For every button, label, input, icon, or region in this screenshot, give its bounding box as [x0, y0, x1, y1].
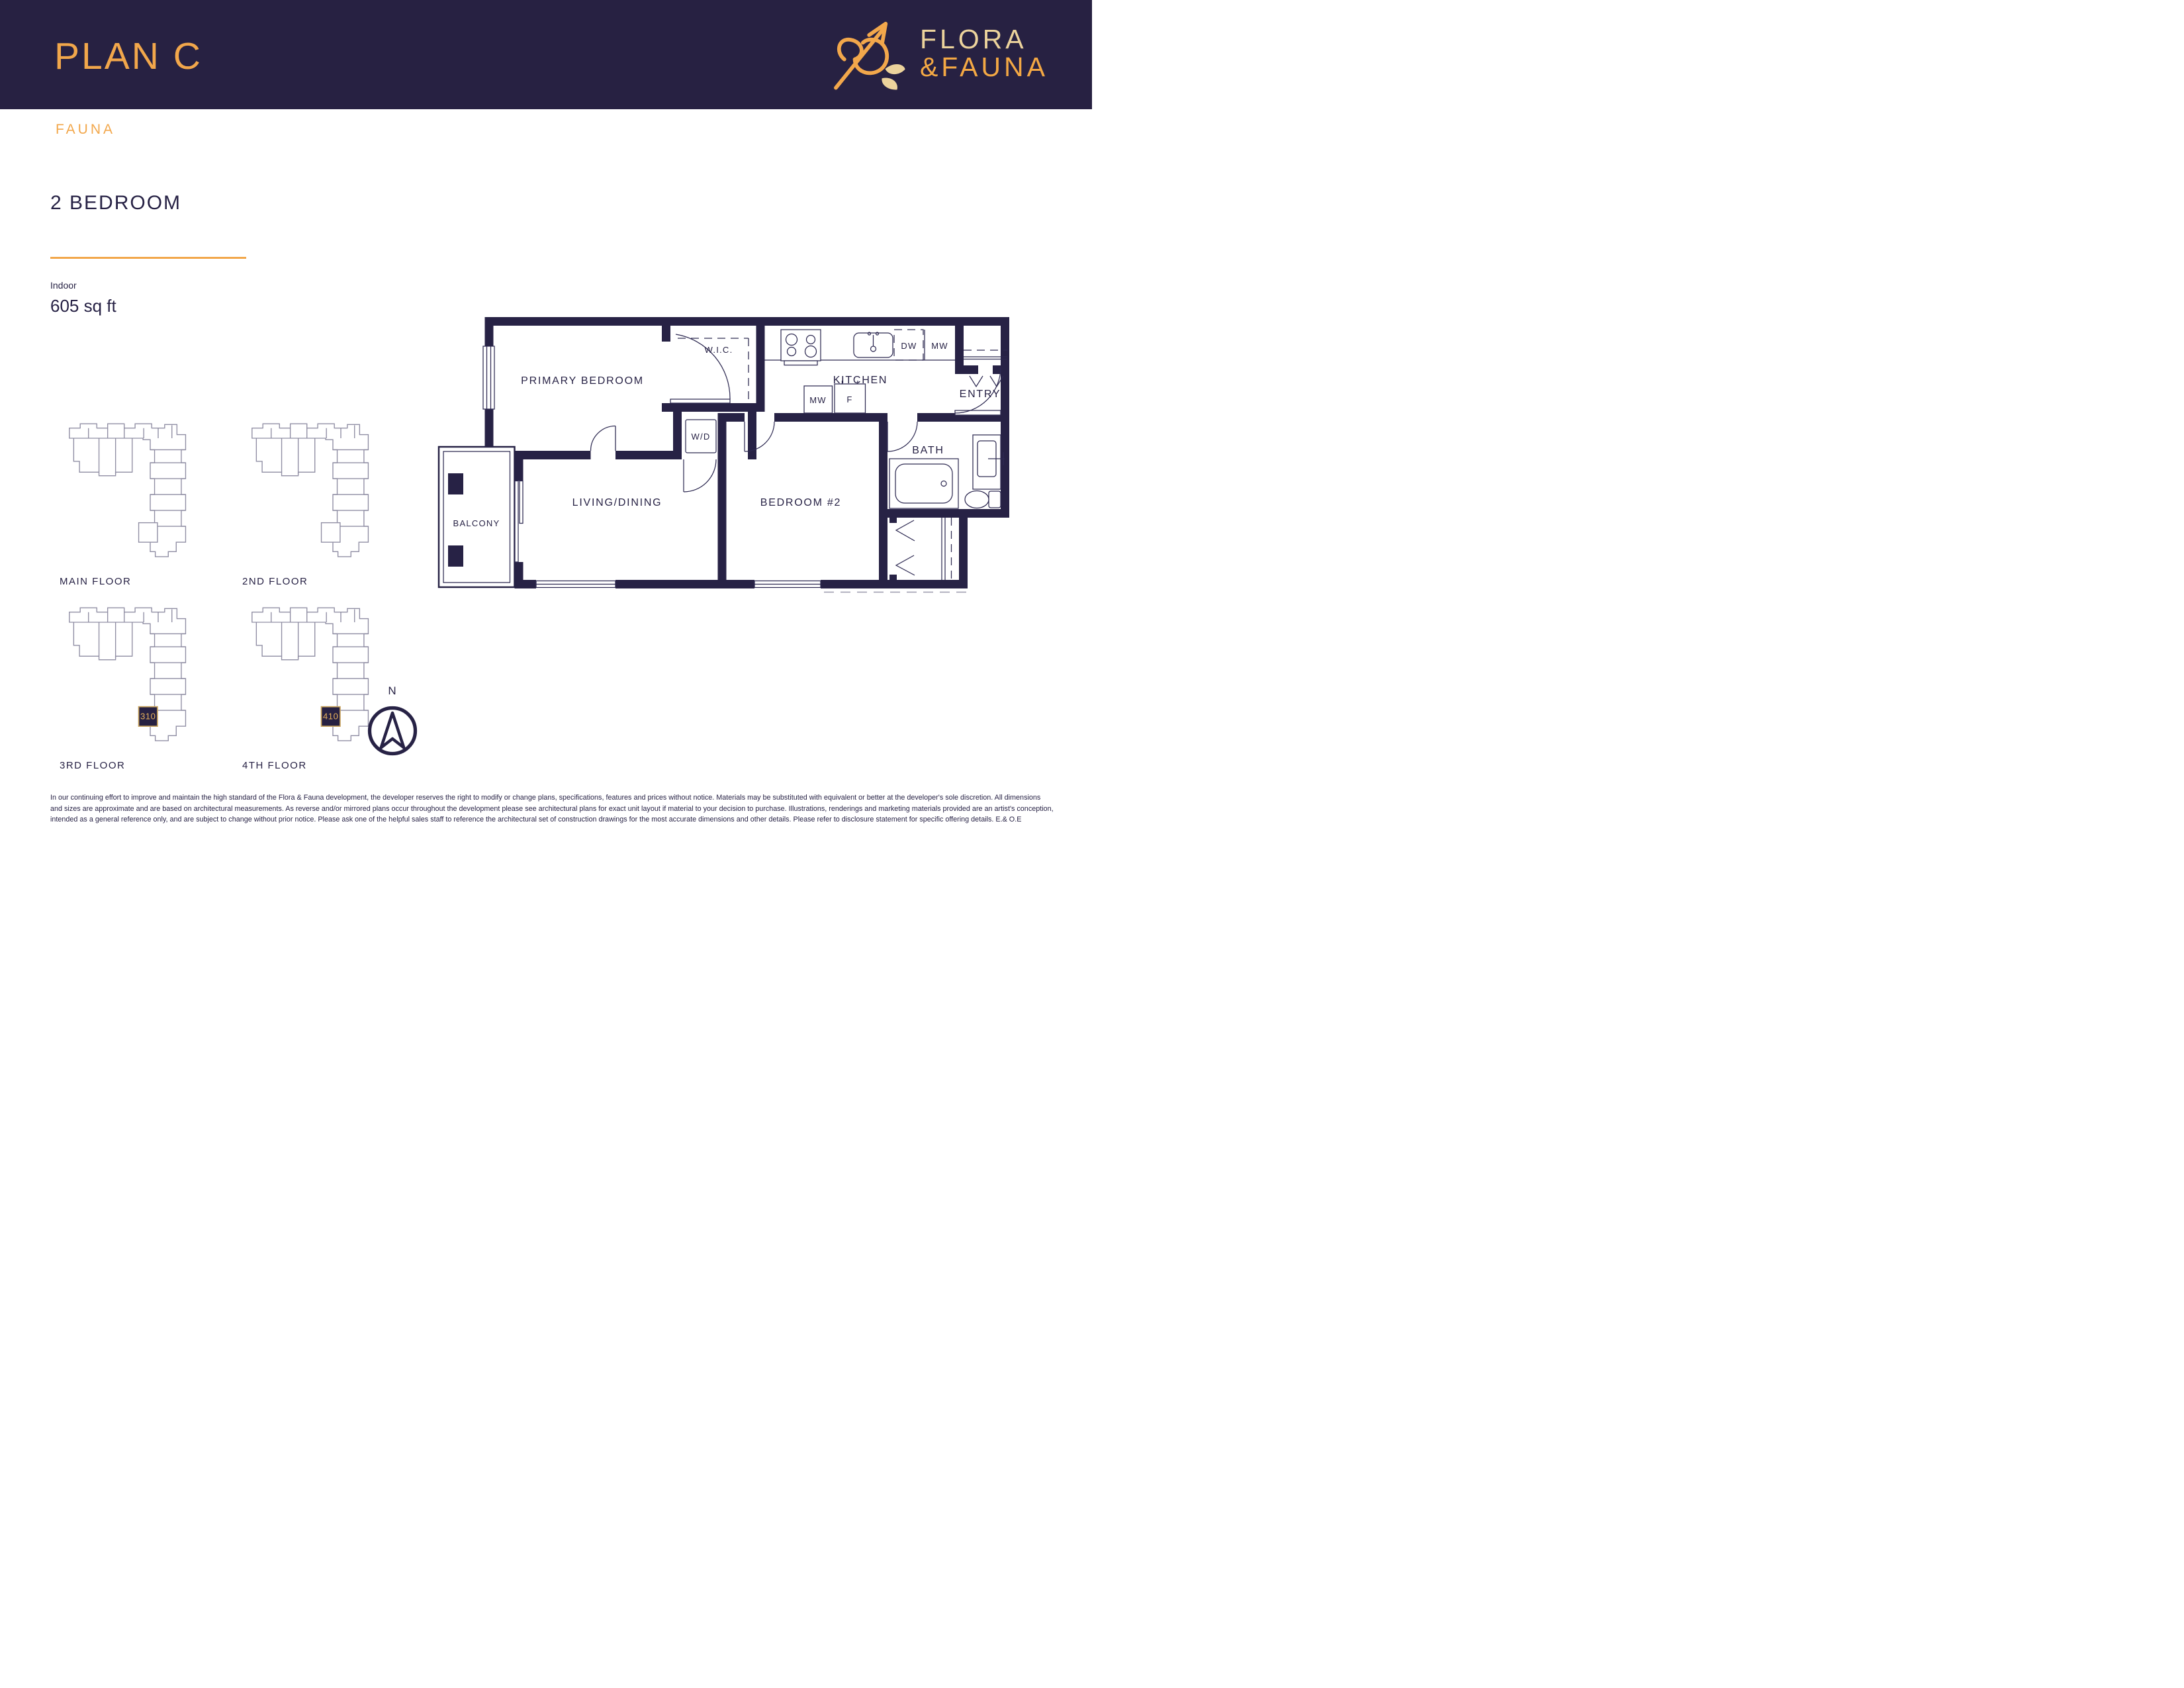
brand-line2: &FAUNA	[920, 54, 1048, 81]
indoor-label: Indoor	[50, 280, 77, 291]
washer-dryer	[684, 420, 716, 492]
closet-hook-icon	[896, 520, 915, 541]
keyplan-3rd-floor-diagram: 310	[60, 598, 193, 757]
floor-plan: PRIMARY BEDROOM W.I.C. KITCHEN ENTRY W/D…	[430, 310, 1013, 609]
label-mw-counter: MW	[931, 341, 948, 351]
label-bath: BATH	[912, 445, 944, 456]
keyplan-2nd-floor: 2ND FLOOR	[242, 414, 394, 587]
brand-line1: FLORA	[920, 26, 1048, 54]
closet-hook-icon	[896, 555, 915, 575]
unit-type-heading: 2 BEDROOM	[50, 192, 181, 214]
unit-number: 310	[140, 712, 156, 722]
brand-logo: FLORA &FAUNA	[827, 15, 1048, 93]
coat-hook-icon	[970, 376, 983, 387]
bath-vanity-icon	[973, 435, 1005, 489]
kitchen-sink-icon	[854, 332, 893, 357]
leaf-icon	[882, 78, 897, 90]
unit-highlight-410: 410	[322, 707, 340, 726]
label-mw-wall: MW	[809, 395, 827, 405]
keyplan-2nd-floor-diagram	[242, 414, 376, 573]
keyplan-4th-floor-diagram: 410	[242, 598, 376, 757]
keyplan-3rd-floor: 310 3RD FLOOR	[60, 598, 212, 771]
accent-divider	[50, 257, 246, 259]
unit-highlight-310: 310	[139, 707, 158, 726]
primary-bedroom-door	[591, 426, 616, 451]
balcony-slider	[515, 481, 518, 563]
brand-wordmark: FLORA &FAUNA	[920, 26, 1048, 81]
label-dw: DW	[901, 341, 917, 351]
north-arrow-icon	[363, 699, 422, 763]
compass: N	[363, 684, 422, 766]
balcony-planter	[448, 473, 463, 494]
bedroom2-closet	[889, 518, 952, 580]
stove-icon	[781, 330, 821, 365]
indoor-area-value: 605 sq ft	[50, 296, 116, 316]
keyplan-label: 2ND FLOOR	[242, 576, 394, 587]
keyplan-label: 3RD FLOOR	[60, 760, 212, 771]
bird-logo-icon	[827, 15, 908, 93]
balcony-slider	[520, 481, 523, 524]
label-kitchen: KITCHEN	[833, 375, 887, 386]
unit-number: 410	[323, 712, 338, 722]
label-wd: W/D	[691, 432, 710, 442]
label-fridge: F	[846, 395, 852, 404]
kitchen-counter	[765, 330, 956, 365]
page-title: PLAN C	[54, 34, 203, 78]
balcony-planter	[448, 545, 463, 567]
header-bar: PLAN C FLORA &FAUNA	[0, 0, 1092, 109]
label-wic: W.I.C.	[705, 345, 733, 355]
label-bedroom2: BEDROOM #2	[760, 497, 841, 508]
label-balcony: BALCONY	[453, 518, 500, 528]
leaf-icon	[886, 64, 905, 74]
disclaimer-text: In our continuing effort to improve and …	[50, 792, 1054, 825]
toilet-icon	[965, 491, 1001, 508]
label-entry: ENTRY	[960, 389, 1001, 400]
keyplan-main-floor-diagram	[60, 414, 193, 573]
brochure-page: PLAN C FLORA &FAUNA FAUNA 2 BEDROOM Indo…	[0, 0, 1092, 844]
north-label: N	[363, 684, 422, 698]
keyplan-label: MAIN FLOOR	[60, 576, 212, 587]
label-primary-bedroom: PRIMARY BEDROOM	[521, 375, 644, 387]
collection-label: FAUNA	[56, 122, 115, 138]
keyplan-main-floor: MAIN FLOOR	[60, 414, 212, 587]
bathtub-icon	[889, 459, 958, 508]
label-living-dining: LIVING/DINING	[572, 497, 662, 508]
balcony-structure	[439, 447, 515, 587]
